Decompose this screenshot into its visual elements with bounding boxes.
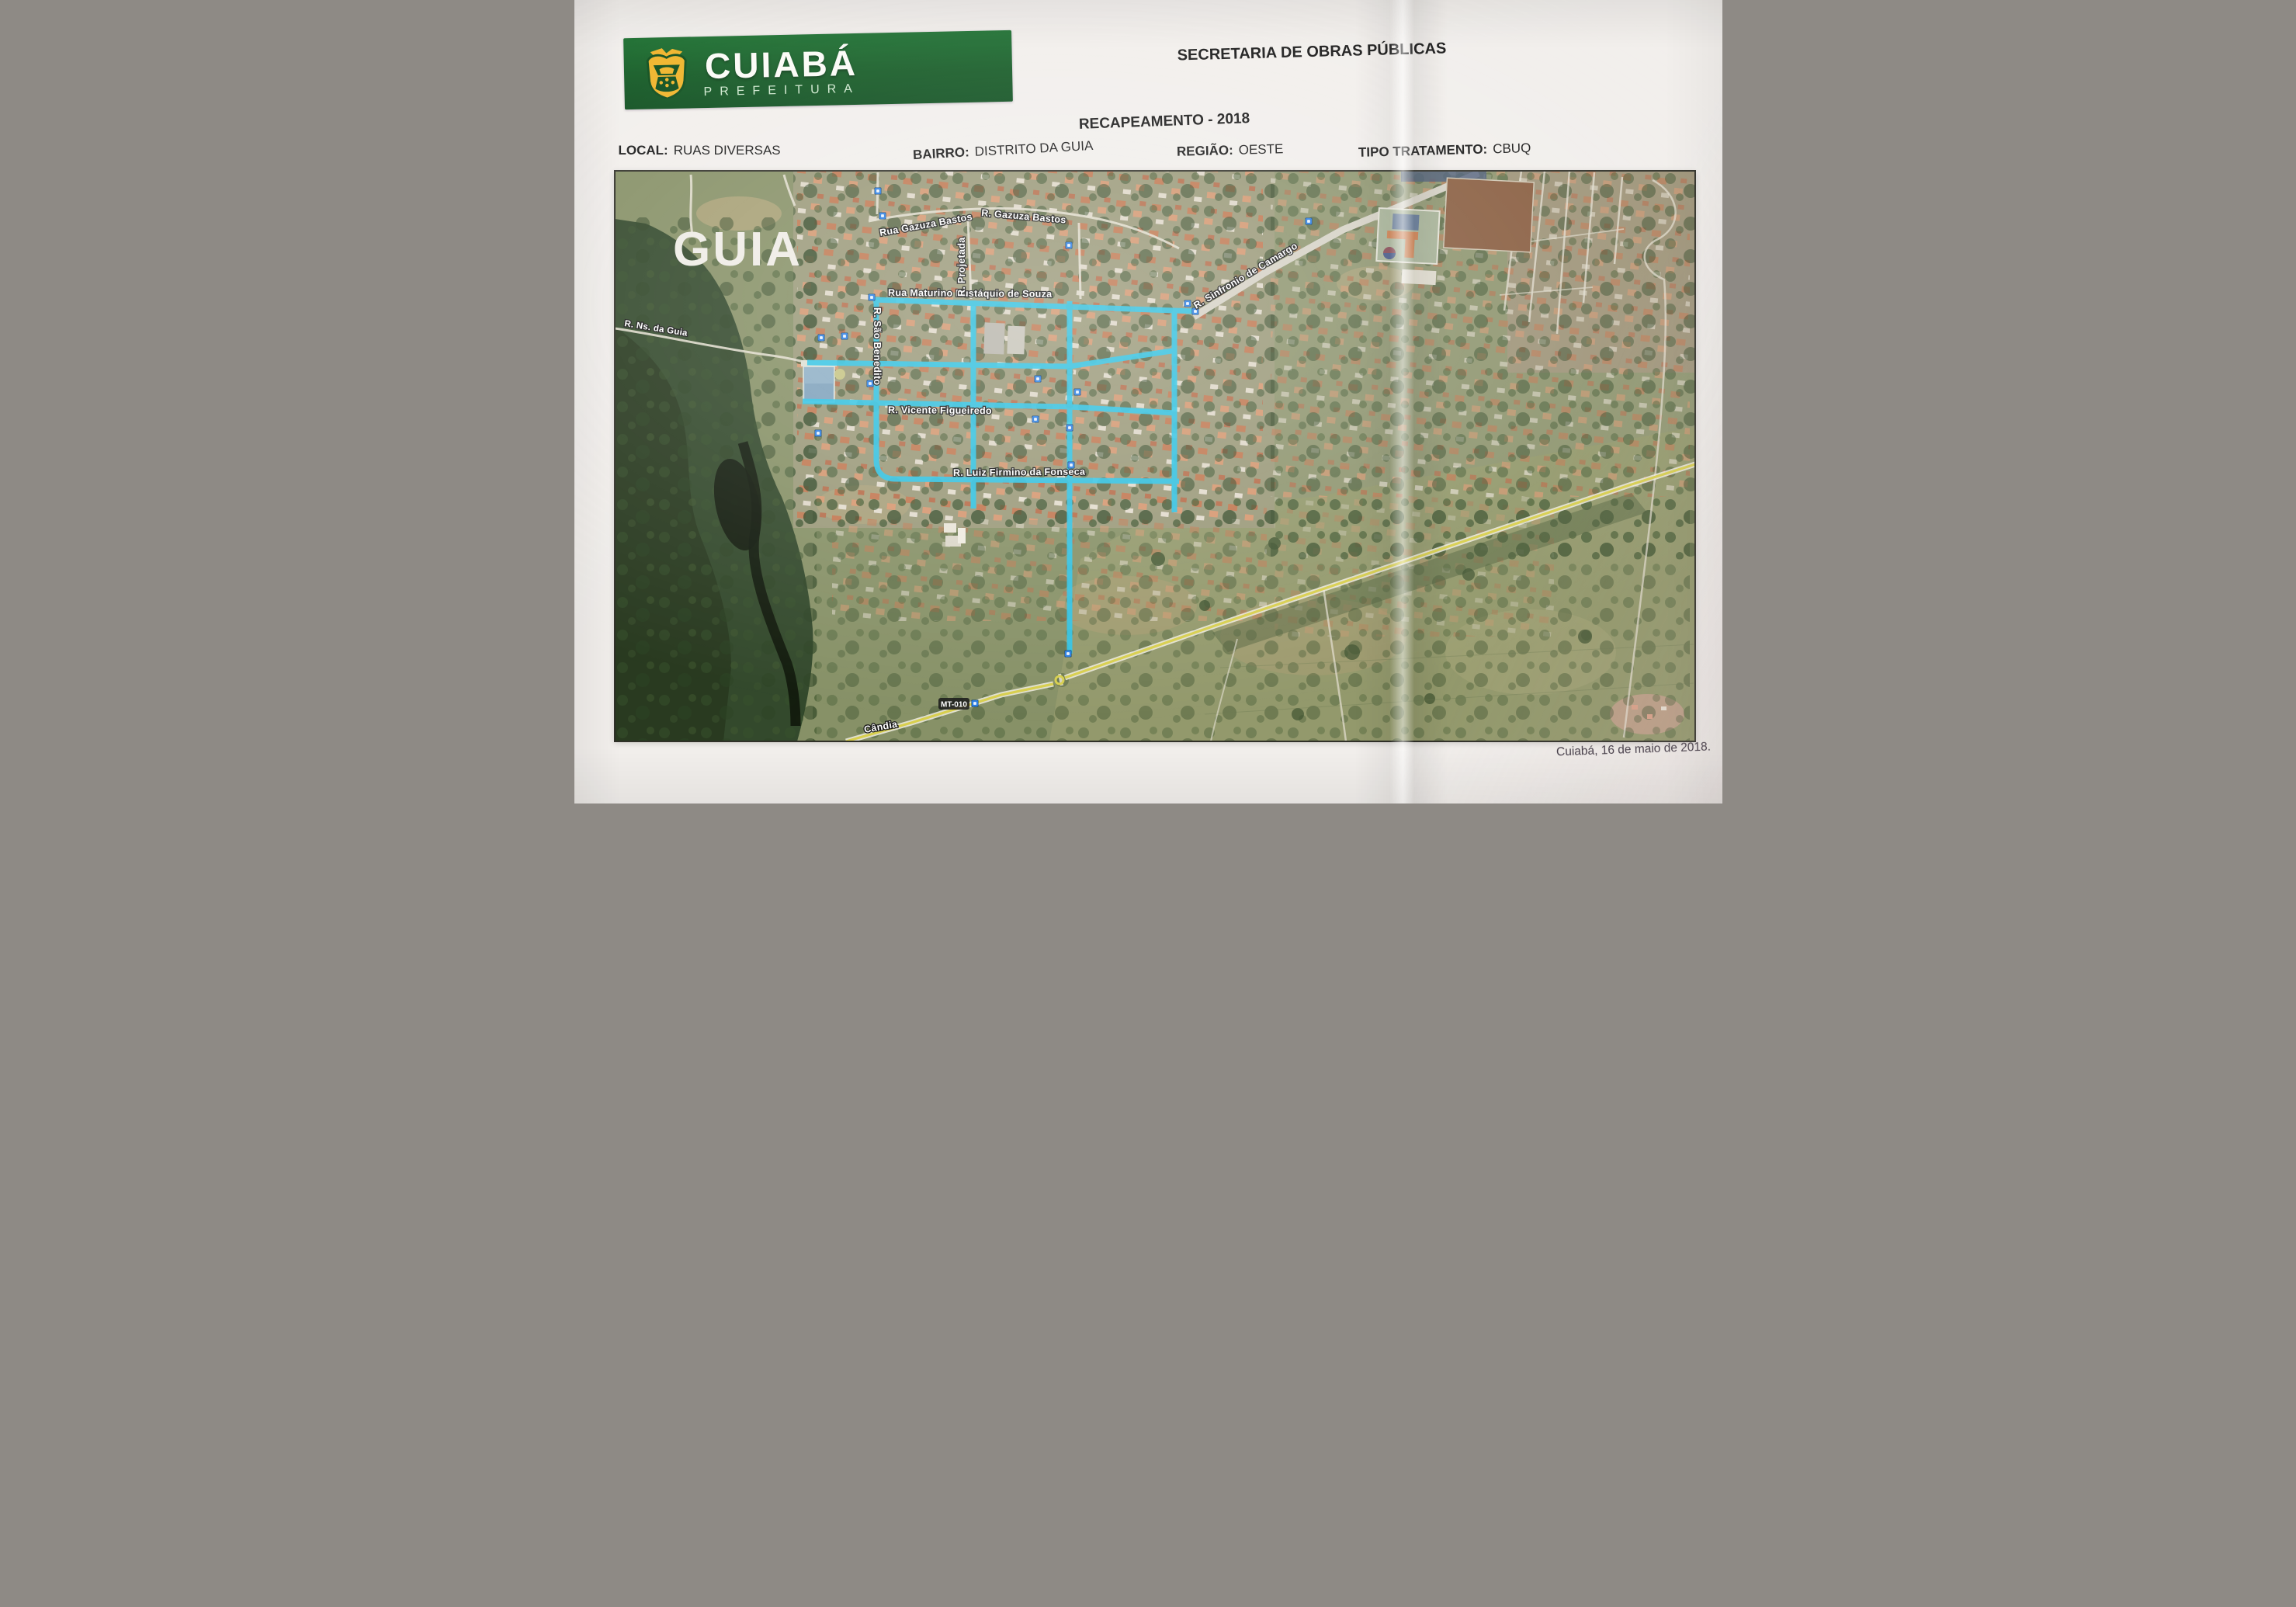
info-row: LOCAL:RUAS DIVERSAS BAIRRO:DISTRITO DA G… bbox=[574, 143, 1722, 161]
logo-title: CUIABÁ bbox=[704, 45, 858, 82]
map-marker bbox=[1066, 425, 1073, 432]
mt010-badge-label: MT-010 bbox=[941, 701, 967, 710]
map-marker bbox=[1064, 651, 1071, 658]
map-marker bbox=[1184, 300, 1191, 307]
program-title: RECAPEAMENTO - 2018 bbox=[1032, 109, 1296, 135]
info-bairro: BAIRRO:DISTRITO DA GUIA bbox=[912, 138, 1093, 163]
info-bairro-value: DISTRITO DA GUIA bbox=[974, 138, 1094, 159]
street-fonseca bbox=[896, 479, 1179, 481]
street-label-projetada: R. Projetada bbox=[956, 237, 967, 297]
map-marker bbox=[1032, 416, 1039, 423]
satellite-map: GUIA Rua Gazuza Bastos R. Gazuza Bastos … bbox=[615, 171, 1695, 741]
map-marker bbox=[1073, 389, 1080, 396]
info-local-value: RUAS DIVERSAS bbox=[674, 143, 781, 158]
mt010-badge: MT-010 bbox=[938, 698, 969, 710]
street-label-sao-benedito: R. São Benedito bbox=[872, 307, 883, 385]
map-marker bbox=[817, 335, 824, 342]
map-marker bbox=[971, 700, 978, 707]
info-regiao: REGIÃO:OESTE bbox=[1176, 141, 1283, 160]
map-marker bbox=[874, 188, 881, 195]
department-title: SECRETARIA DE OBRAS PÚBLICAS bbox=[1132, 39, 1490, 66]
area-label-guia: GUIA bbox=[673, 223, 803, 276]
map-marker bbox=[879, 213, 886, 220]
info-tipo: TIPO TRATAMENTO:CBUQ bbox=[1358, 141, 1531, 161]
info-bairro-label: BAIRRO: bbox=[912, 144, 969, 162]
info-local: LOCAL:RUAS DIVERSAS bbox=[619, 143, 781, 158]
prefeitura-logo-banner: CUIABÁ PREFEITURA bbox=[623, 30, 1013, 109]
map-marker bbox=[814, 430, 821, 437]
map-marker bbox=[1034, 376, 1041, 383]
info-tipo-value: CBUQ bbox=[1492, 141, 1531, 156]
info-regiao-value: OESTE bbox=[1238, 141, 1283, 158]
street-label-fonseca: R. Luiz Firmino da Fonseca bbox=[952, 467, 1085, 478]
map-marker bbox=[1305, 218, 1312, 225]
info-tipo-label: TIPO TRATAMENTO: bbox=[1358, 142, 1487, 160]
map-marker bbox=[841, 333, 848, 340]
info-regiao-label: REGIÃO: bbox=[1176, 143, 1233, 159]
cuiaba-crest-icon bbox=[643, 47, 689, 99]
printed-map-document: CUIABÁ PREFEITURA SECRETARIA DE OBRAS PÚ… bbox=[574, 0, 1722, 803]
logo-subtitle: PREFEITURA bbox=[703, 82, 860, 99]
map-marker bbox=[868, 294, 875, 301]
document-date: Cuiabá, 16 de maio de 2018. bbox=[1556, 741, 1712, 760]
map-marker bbox=[1065, 242, 1072, 249]
street-label-vicente: R. Vicente Figueiredo bbox=[887, 404, 991, 416]
street-label-maturino: Rua Maturino Eustáquio de Souza bbox=[887, 287, 1052, 300]
info-local-label: LOCAL: bbox=[619, 143, 668, 158]
